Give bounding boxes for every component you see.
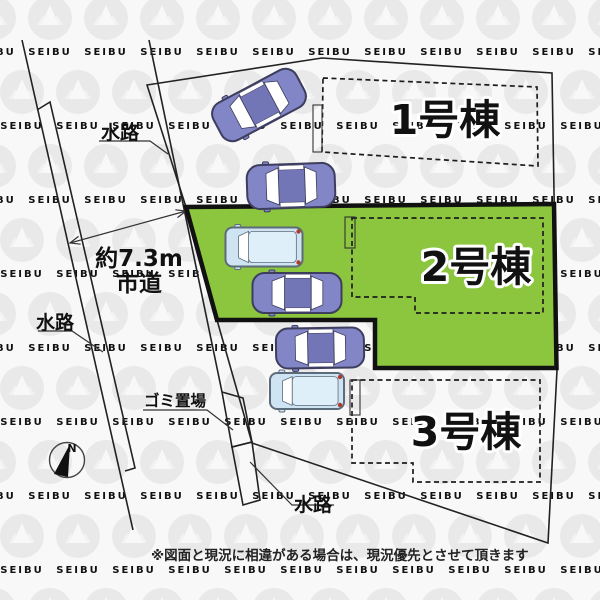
waterway-left-label: 水路: [36, 311, 75, 334]
svg-text:SEIBU: SEIBU: [420, 491, 464, 502]
svg-text:SEIBU: SEIBU: [364, 47, 408, 58]
watermark-logo-icon: SEIBU: [28, 144, 72, 206]
van-car-icon: [226, 225, 303, 270]
svg-text:SEIBU: SEIBU: [56, 121, 100, 132]
svg-text:SEIBU: SEIBU: [196, 343, 240, 354]
svg-text:SEIBU: SEIBU: [28, 343, 72, 354]
svg-text:SEIBU: SEIBU: [532, 47, 576, 58]
waterway-bottom-label: 水路: [294, 493, 333, 516]
watermark-logo-icon: SEIBU: [504, 70, 548, 132]
watermark-logo-icon: SEIBU: [224, 514, 268, 576]
svg-text:SEIBU: SEIBU: [588, 343, 600, 354]
svg-text:SEIBU: SEIBU: [336, 417, 380, 428]
watermark-logo-icon: SEIBU: [56, 70, 100, 132]
svg-text:SEIBU: SEIBU: [168, 417, 212, 428]
svg-text:SEIBU: SEIBU: [140, 47, 184, 58]
svg-text:SEIBU: SEIBU: [112, 417, 156, 428]
footnote-text: ※図面と現況に相違がある場合は、現況優先とさせて頂きます: [151, 547, 529, 564]
svg-text:SEIBU: SEIBU: [28, 195, 72, 206]
watermark-logo-icon: SEIBU: [56, 366, 100, 428]
svg-text:SEIBU: SEIBU: [56, 565, 100, 576]
watermark-logo-icon: SEIBU: [140, 292, 184, 354]
svg-text:SEIBU: SEIBU: [0, 491, 16, 502]
svg-text:SEIBU: SEIBU: [28, 47, 72, 58]
watermark-logo-icon: SEIBU: [168, 514, 212, 576]
compass-north-label: N: [67, 442, 76, 455]
watermark-logo-icon: SEIBU: [532, 440, 576, 502]
svg-text:SEIBU: SEIBU: [140, 343, 184, 354]
svg-text:SEIBU: SEIBU: [280, 121, 324, 132]
building2-label: 2号棟: [421, 243, 533, 291]
watermark-logo-icon: SEIBU: [56, 514, 100, 576]
svg-text:SEIBU: SEIBU: [588, 491, 600, 502]
watermark-logo-icon: SEIBU: [420, 0, 464, 58]
svg-text:SEIBU: SEIBU: [588, 195, 600, 206]
svg-text:SEIBU: SEIBU: [0, 195, 16, 206]
sedan-car-icon: [253, 270, 342, 316]
watermark-logo-icon: SEIBU: [196, 0, 240, 58]
watermark-logo-icon: SEIBU: [476, 0, 520, 58]
svg-text:SEIBU: SEIBU: [420, 47, 464, 58]
svg-text:SEIBU: SEIBU: [560, 417, 600, 428]
watermark-logo-icon: SEIBU: [560, 514, 600, 576]
road-name-label: 市道: [116, 270, 162, 297]
watermark-logo-icon: SEIBU: [308, 440, 352, 502]
site-plan-image: SEIBUSEIBUSEIBUSEIBUSEIBUSEIBUSEIBUSEIBU…: [0, 0, 600, 600]
building3-label: 3号棟: [411, 408, 523, 456]
svg-text:SEIBU: SEIBU: [392, 565, 436, 576]
watermark-logo-icon: SEIBU: [140, 440, 184, 502]
svg-text:SEIBU: SEIBU: [196, 195, 240, 206]
watermark-logo-icon: SEIBU: [84, 440, 128, 502]
watermark-logo-icon: SEIBU: [560, 366, 600, 428]
watermark-logo-icon: SEIBU: [0, 366, 44, 428]
svg-text:SEIBU: SEIBU: [0, 269, 44, 280]
watermark-logo-icon: SEIBU: [308, 0, 352, 58]
watermark-logo-icon: SEIBU: [532, 0, 576, 58]
watermark-logo-icon: SEIBU: [336, 514, 380, 576]
svg-text:SEIBU: SEIBU: [84, 47, 128, 58]
watermark-logo-icon: SEIBU: [392, 514, 436, 576]
watermark-logo-icon: SEIBU: [504, 514, 548, 576]
svg-text:SEIBU: SEIBU: [280, 417, 324, 428]
watermark-logo-icon: SEIBU: [168, 70, 212, 132]
watermark-logo-icon: SEIBU: [280, 514, 324, 576]
svg-text:SEIBU: SEIBU: [588, 47, 600, 58]
site-plan-svg: SEIBUSEIBUSEIBUSEIBUSEIBUSEIBUSEIBUSEIBU…: [0, 0, 600, 600]
svg-text:SEIBU: SEIBU: [476, 491, 520, 502]
road-width-label: 約7.3m: [95, 245, 183, 272]
watermark-logo-icon: SEIBU: [196, 440, 240, 502]
waterway-top-label: 水路: [101, 121, 140, 144]
watermark-logo-icon: SEIBU: [140, 0, 184, 58]
svg-text:SEIBU: SEIBU: [0, 565, 44, 576]
watermark-logo-icon: SEIBU: [0, 218, 44, 280]
svg-text:SEIBU: SEIBU: [336, 121, 380, 132]
watermark-logo-icon: SEIBU: [476, 144, 520, 206]
svg-text:SEIBU: SEIBU: [336, 565, 380, 576]
svg-text:SEIBU: SEIBU: [532, 491, 576, 502]
svg-text:SEIBU: SEIBU: [28, 491, 72, 502]
svg-text:SEIBU: SEIBU: [224, 565, 268, 576]
svg-text:SEIBU: SEIBU: [560, 269, 600, 280]
sedan-car-icon: [246, 159, 336, 212]
svg-text:SEIBU: SEIBU: [0, 343, 16, 354]
svg-text:SEIBU: SEIBU: [560, 565, 600, 576]
watermark-logo-icon: SEIBU: [196, 144, 240, 206]
sedan-car-icon: [276, 324, 365, 372]
watermark-logo-icon: SEIBU: [364, 0, 408, 58]
svg-text:SEIBU: SEIBU: [168, 565, 212, 576]
svg-text:SEIBU: SEIBU: [308, 47, 352, 58]
svg-text:SEIBU: SEIBU: [0, 121, 44, 132]
watermark-logo-icon: SEIBU: [224, 366, 268, 428]
svg-text:SEIBU: SEIBU: [140, 491, 184, 502]
svg-text:SEIBU: SEIBU: [84, 491, 128, 502]
watermark-logo-icon: SEIBU: [112, 514, 156, 576]
building1-label: 1号棟: [390, 96, 502, 144]
svg-text:SEIBU: SEIBU: [112, 565, 156, 576]
svg-text:SEIBU: SEIBU: [560, 121, 600, 132]
svg-text:SEIBU: SEIBU: [196, 491, 240, 502]
watermark-logo-icon: SEIBU: [84, 144, 128, 206]
svg-text:SEIBU: SEIBU: [168, 121, 212, 132]
watermark-logo-icon: SEIBU: [28, 0, 72, 58]
svg-text:SEIBU: SEIBU: [504, 121, 548, 132]
svg-text:SEIBU: SEIBU: [0, 417, 44, 428]
svg-text:SEIBU: SEIBU: [252, 47, 296, 58]
svg-text:SEIBU: SEIBU: [140, 195, 184, 206]
svg-text:SEIBU: SEIBU: [476, 47, 520, 58]
svg-text:SEIBU: SEIBU: [0, 47, 16, 58]
garbage-area-label: ゴミ置場: [144, 391, 207, 410]
van-car-icon: [270, 370, 344, 412]
watermark-logo-icon: SEIBU: [252, 0, 296, 58]
svg-text:SEIBU: SEIBU: [280, 565, 324, 576]
watermark-logo-icon: SEIBU: [56, 218, 100, 280]
svg-text:SEIBU: SEIBU: [84, 195, 128, 206]
svg-text:SEIBU: SEIBU: [196, 47, 240, 58]
watermark-logo-icon: SEIBU: [448, 514, 492, 576]
watermark-logo-icon: SEIBU: [84, 0, 128, 58]
svg-text:SEIBU: SEIBU: [448, 565, 492, 576]
svg-text:SEIBU: SEIBU: [504, 565, 548, 576]
watermark-logo-icon: SEIBU: [0, 70, 44, 132]
watermark-logo-icon: SEIBU: [420, 144, 464, 206]
watermark-logo-icon: SEIBU: [560, 218, 600, 280]
watermark-logo-icon: SEIBU: [560, 70, 600, 132]
watermark-logo-icon: SEIBU: [364, 144, 408, 206]
svg-text:SEIBU: SEIBU: [56, 269, 100, 280]
watermark-logo-icon: SEIBU: [0, 514, 44, 576]
svg-text:SEIBU: SEIBU: [56, 417, 100, 428]
